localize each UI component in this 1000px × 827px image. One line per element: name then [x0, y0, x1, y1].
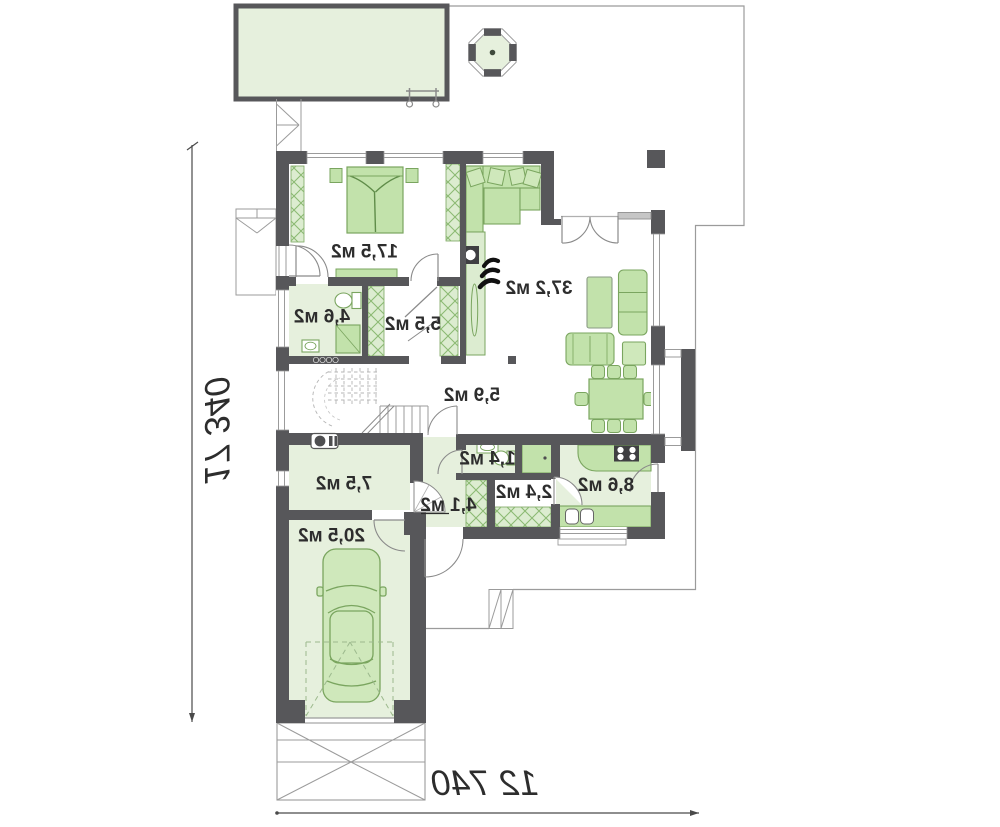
svg-text:17 340: 17 340 [197, 377, 236, 485]
svg-text:4,6 м2: 4,6 м2 [294, 307, 350, 328]
svg-text:17,5 м2: 17,5 м2 [331, 242, 398, 263]
svg-text:5,5 м2: 5,5 м2 [385, 314, 441, 335]
svg-text:12 740: 12 740 [431, 764, 539, 803]
svg-text:20,5 м2: 20,5 м2 [298, 526, 365, 547]
svg-text:7,5 м2: 7,5 м2 [316, 474, 372, 495]
svg-text:5,9 м2: 5,9 м2 [444, 385, 500, 406]
svg-text:8,6 м2: 8,6 м2 [578, 475, 634, 496]
svg-text:37,2 м2: 37,2 м2 [506, 278, 573, 299]
svg-text:1,4 м2: 1,4 м2 [459, 449, 515, 470]
svg-text:2,4 м2: 2,4 м2 [496, 482, 552, 503]
